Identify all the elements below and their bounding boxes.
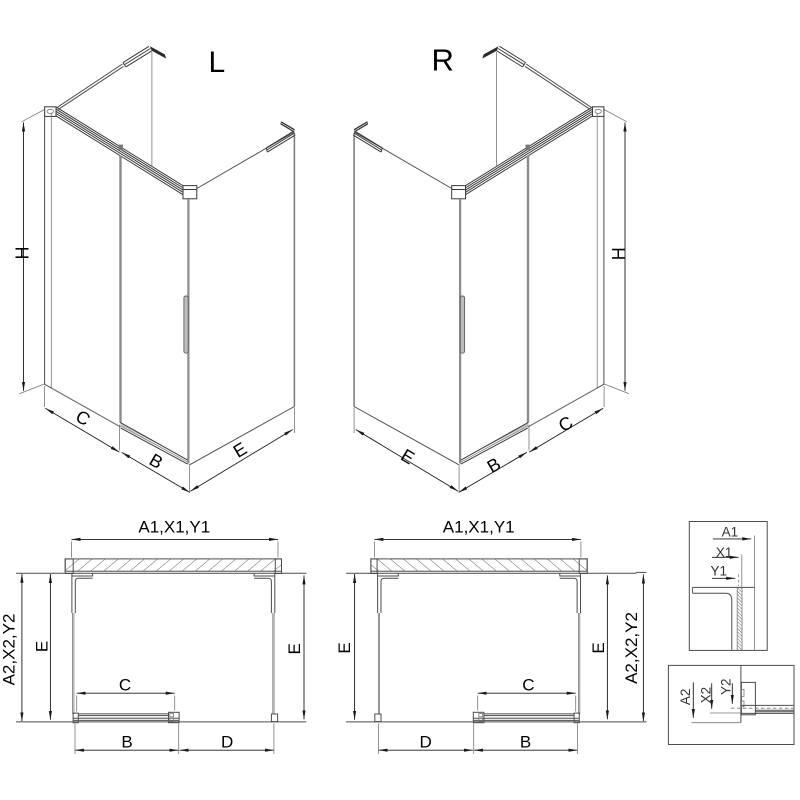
svg-text:A2,X2,Y2: A2,X2,Y2 <box>0 614 18 686</box>
svg-text:H: H <box>13 247 33 260</box>
svg-text:L: L <box>209 46 226 79</box>
svg-text:R: R <box>432 43 454 78</box>
svg-text:Y2: Y2 <box>719 679 734 696</box>
svg-text:E: E <box>335 642 354 653</box>
svg-text:D: D <box>419 733 431 752</box>
svg-text:E: E <box>33 641 52 652</box>
svg-text:C: C <box>119 675 131 694</box>
svg-text:B: B <box>520 733 531 752</box>
svg-text:Y1: Y1 <box>711 564 728 579</box>
svg-text:A1,X1,Y1: A1,X1,Y1 <box>443 518 515 537</box>
svg-text:D: D <box>221 733 233 752</box>
svg-text:B: B <box>121 733 132 752</box>
svg-text:H: H <box>609 247 629 260</box>
svg-text:C: C <box>522 675 534 694</box>
svg-text:A1: A1 <box>722 524 739 539</box>
svg-text:E: E <box>285 643 304 654</box>
svg-text:E: E <box>589 642 608 653</box>
svg-text:X2: X2 <box>698 687 713 704</box>
svg-text:A1,X1,Y1: A1,X1,Y1 <box>138 518 210 537</box>
svg-text:A2,X2,Y2: A2,X2,Y2 <box>622 612 641 684</box>
svg-text:A2: A2 <box>678 689 693 706</box>
